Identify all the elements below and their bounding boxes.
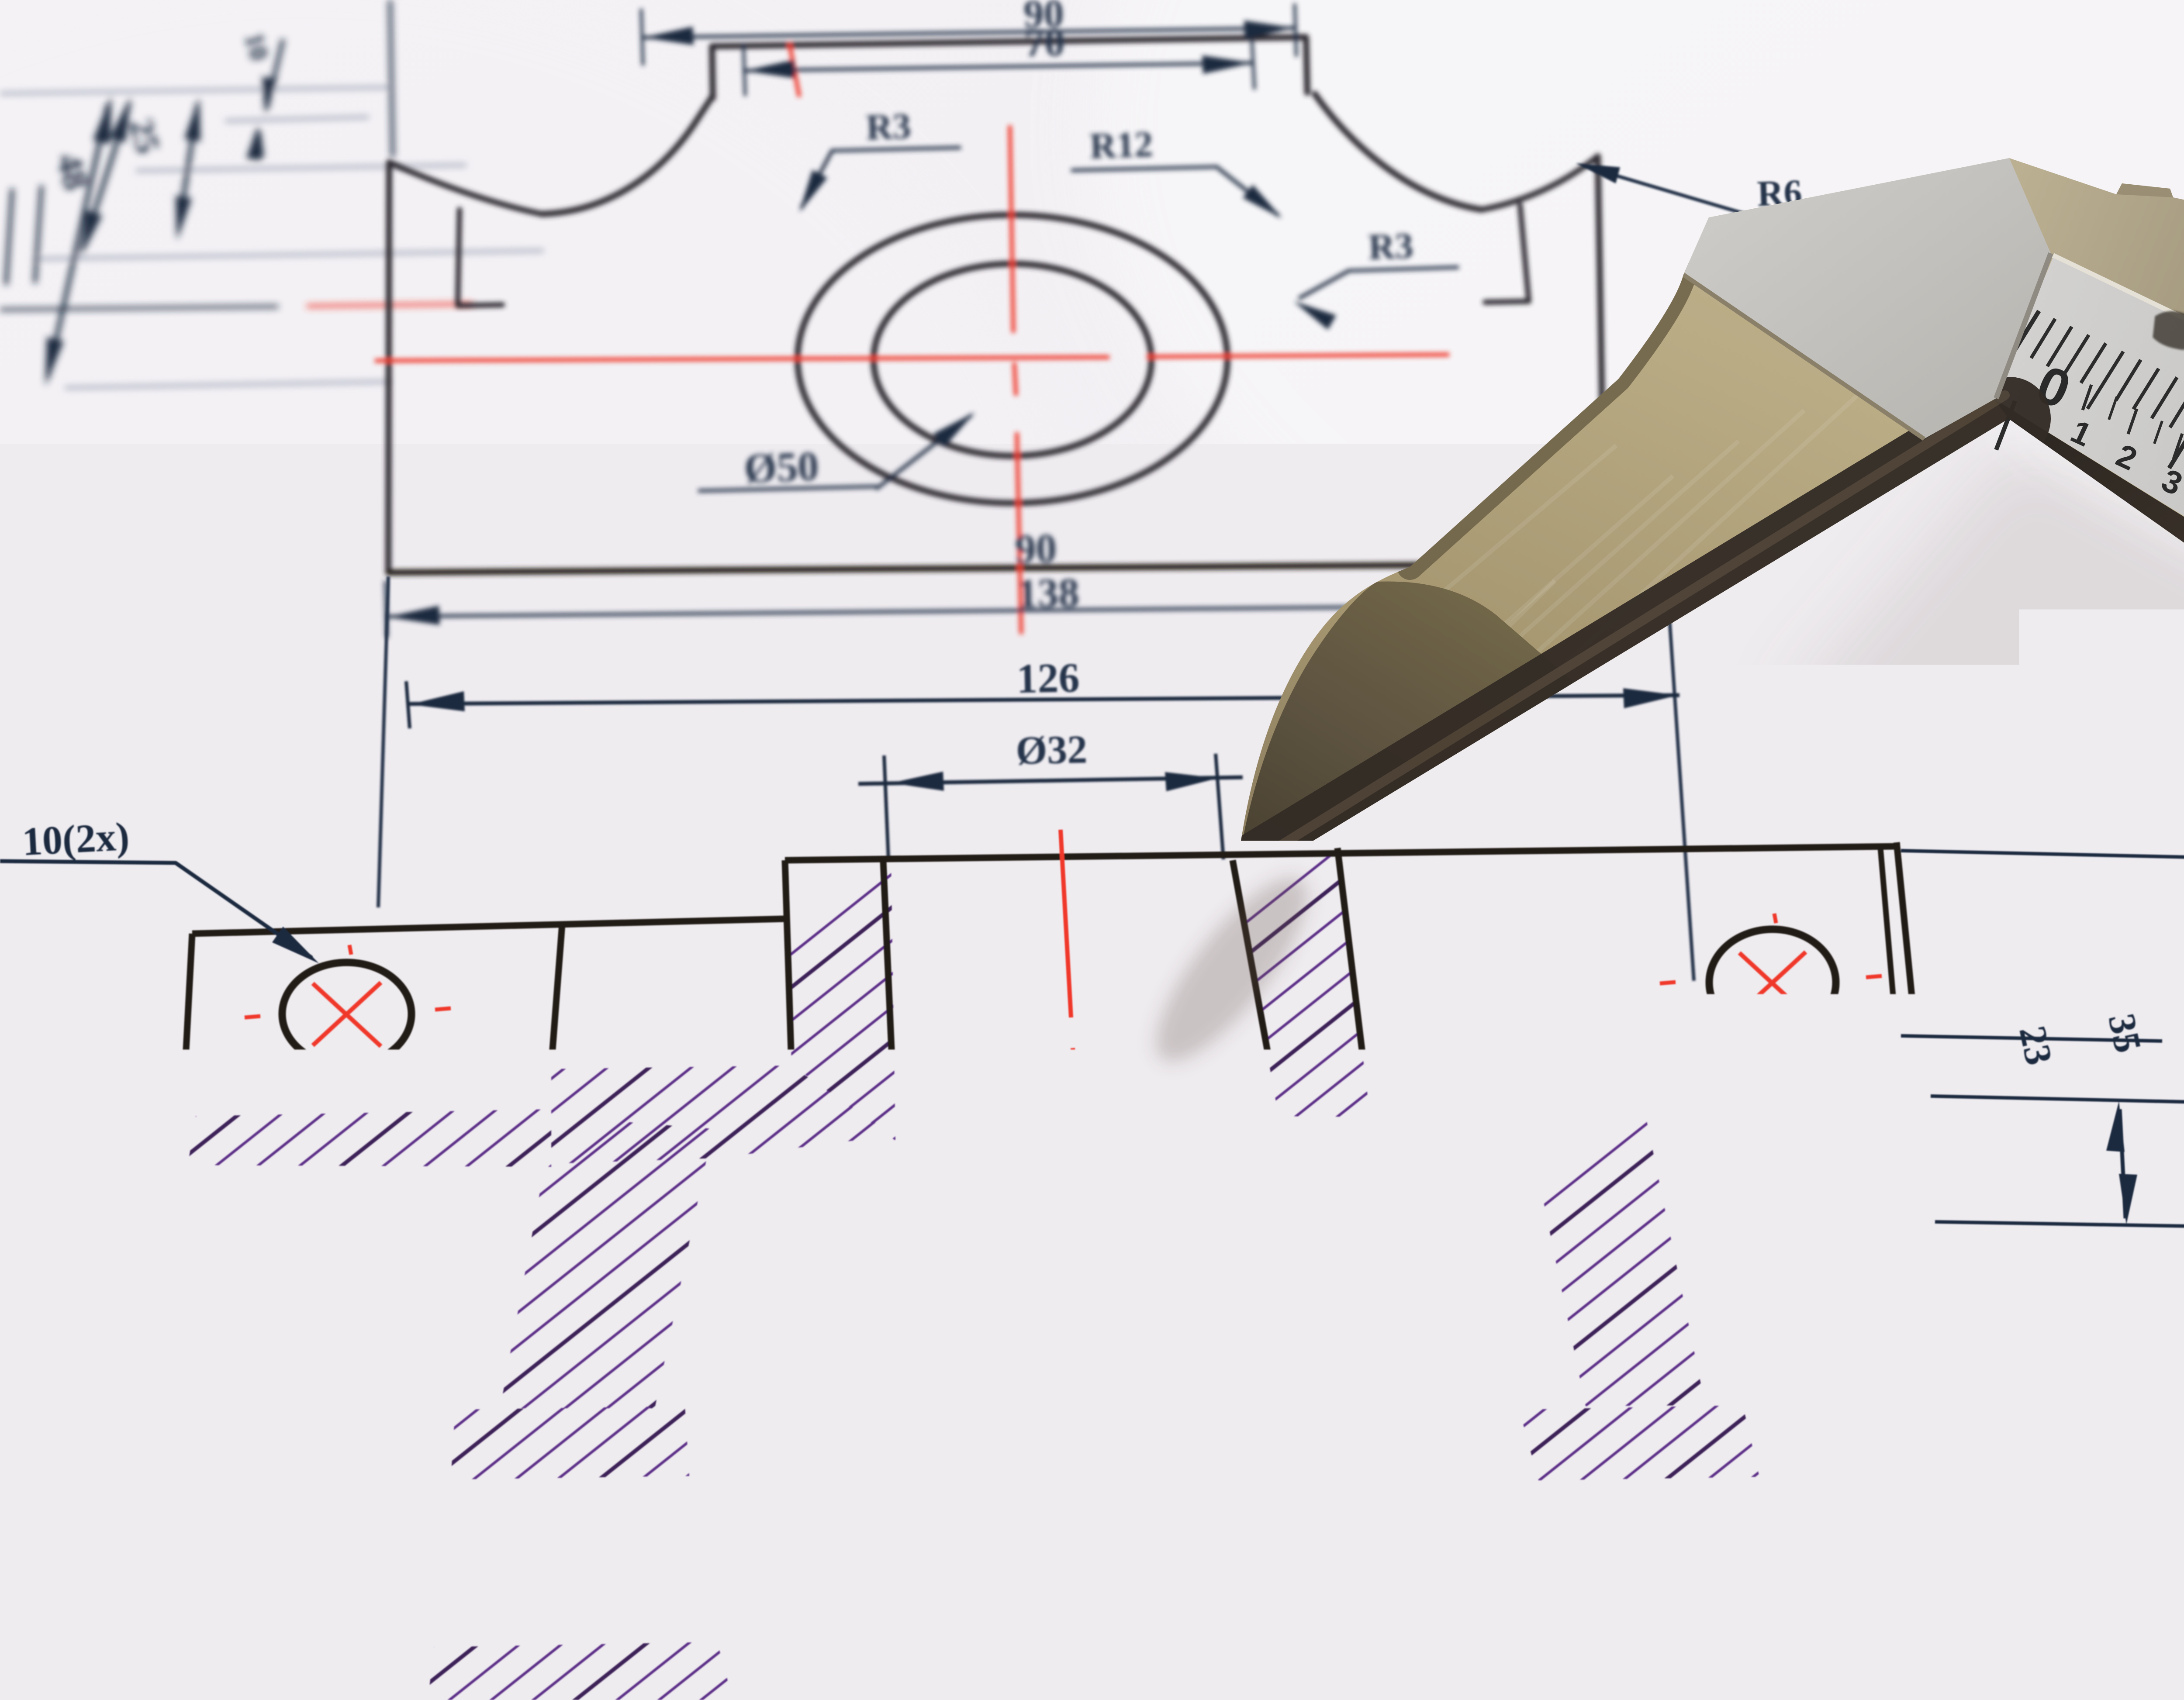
svg-text:90: 90 — [1015, 525, 1057, 572]
svg-text:R3: R3 — [1368, 225, 1414, 268]
svg-text:R3: R3 — [865, 106, 912, 148]
svg-text:R12: R12 — [1089, 124, 1154, 167]
svg-text:10: 10 — [1827, 1241, 1867, 1285]
svg-text:10(2x): 10(2x) — [21, 814, 130, 864]
svg-text:70: 70 — [1024, 20, 1065, 65]
svg-text:Ø50: Ø50 — [743, 442, 819, 492]
svg-text:10: 10 — [363, 1239, 404, 1283]
svg-text:126: 126 — [1016, 654, 1080, 702]
svg-text:R6: R6 — [936, 1218, 985, 1263]
svg-text:Ø32: Ø32 — [1016, 727, 1088, 773]
